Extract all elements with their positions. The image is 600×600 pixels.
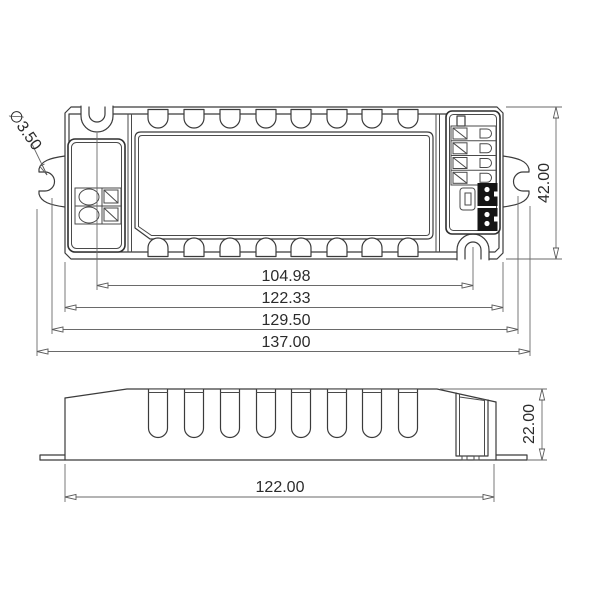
dim-top-view-height-label: 42.00 xyxy=(536,163,553,203)
leader-arrowhead xyxy=(40,164,47,175)
side-left-tab xyxy=(40,455,65,460)
input-terminal-block xyxy=(68,139,125,252)
side-view xyxy=(40,389,527,460)
top-view xyxy=(39,106,529,261)
label-area-outer xyxy=(135,132,433,239)
dim-side-length-label: 122.00 xyxy=(256,479,305,496)
dim-body-width-label: 122.33 xyxy=(262,290,311,307)
dim-mount-slot-centers-label: 104.98 xyxy=(262,268,311,285)
right-flange xyxy=(503,156,529,207)
side-connector-block xyxy=(456,393,488,460)
dim-side-length: 122.00 xyxy=(65,464,494,502)
dim-side-height-label: 22.00 xyxy=(521,404,538,444)
technical-drawing-page: ∅3.50 104.98 122.33 129.50 xyxy=(0,0,600,600)
block-tab xyxy=(457,116,465,126)
dim-top-view-height: 42.00 xyxy=(506,107,562,259)
dim-flange-slots-label: 129.50 xyxy=(262,312,311,329)
side-vent-slots xyxy=(149,390,418,438)
technical-drawing: ∅3.50 104.98 122.33 129.50 xyxy=(0,0,600,600)
mounting-slot-top-left xyxy=(81,106,113,132)
side-right-tab xyxy=(496,455,527,460)
side-body-top xyxy=(65,389,496,402)
hole-diameter-label: ∅3.50 xyxy=(5,107,45,154)
dim-overall-width-label: 137.00 xyxy=(262,334,311,351)
output-terminal-block xyxy=(446,111,500,234)
